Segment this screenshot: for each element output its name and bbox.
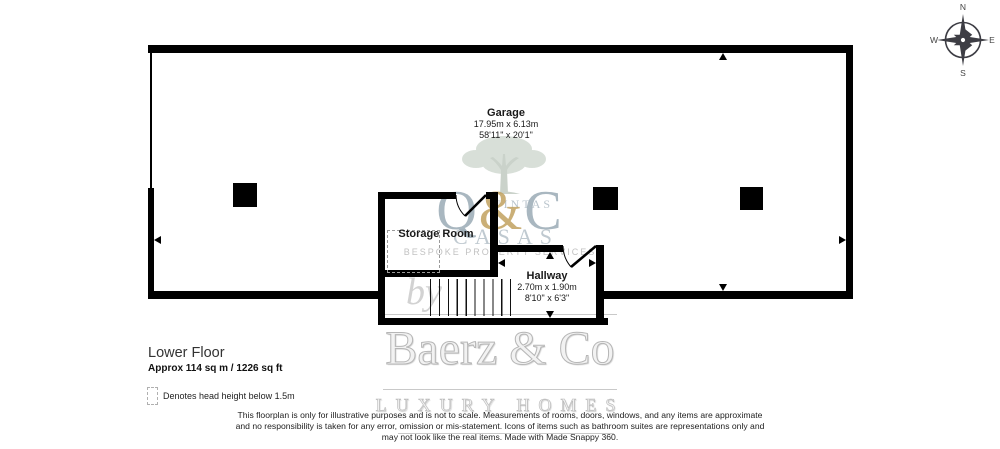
floor-area: Approx 114 sq m / 1226 sq ft <box>148 363 283 374</box>
floor-title: Lower Floor <box>148 345 225 361</box>
head-height-legend-icon <box>147 387 158 405</box>
disclaimer-line: may not look like the real items. Made w… <box>0 432 1000 442</box>
head-height-legend-text: Denotes head height below 1.5m <box>163 391 295 401</box>
disclaimer-line: This floorplan is only for illustrative … <box>0 410 1000 420</box>
floorplan-canvas: UINTAS Q&C CASAS BESPOKE PROPERTY SERVIC… <box>0 0 1000 449</box>
disclaimer-line: and no responsibility is taken for any e… <box>0 421 1000 431</box>
